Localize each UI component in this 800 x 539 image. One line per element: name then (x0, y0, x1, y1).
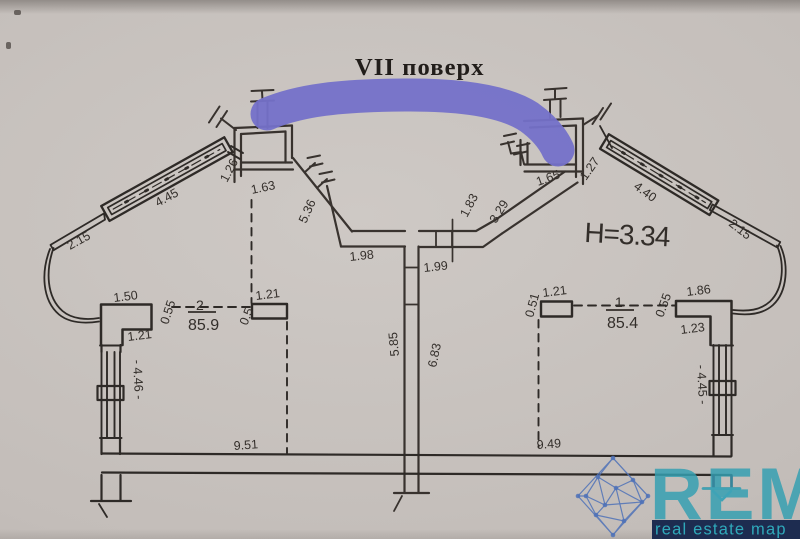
svg-text:VII поверх: VII поверх (355, 54, 485, 81)
svg-text:0.5: 0.5 (237, 306, 257, 327)
svg-text:1.83: 1.83 (457, 191, 481, 219)
svg-text:5.85: 5.85 (386, 331, 402, 357)
svg-text:- 4.45 -: - 4.45 - (694, 364, 710, 404)
svg-text:1.99: 1.99 (423, 259, 449, 275)
svg-text:85.4: 85.4 (607, 315, 638, 332)
svg-text:1.21: 1.21 (542, 283, 568, 300)
svg-text:0.55: 0.55 (158, 298, 179, 326)
svg-text:1.27: 1.27 (577, 155, 602, 183)
svg-text:- 4.46 -: - 4.46 - (130, 359, 146, 399)
svg-text:6.83: 6.83 (425, 342, 444, 369)
svg-text:1.50: 1.50 (113, 288, 139, 305)
svg-text:0.55: 0.55 (653, 291, 674, 319)
svg-text:2: 2 (196, 297, 204, 313)
svg-text:1.21: 1.21 (255, 286, 281, 303)
svg-text:9.51: 9.51 (233, 437, 258, 453)
svg-text:2.15: 2.15 (65, 229, 93, 253)
svg-text:85.9: 85.9 (188, 317, 219, 334)
svg-text:1.21: 1.21 (127, 327, 153, 344)
svg-text:1.23: 1.23 (680, 320, 706, 337)
svg-text:2.15: 2.15 (726, 216, 754, 242)
svg-text:1.63: 1.63 (250, 178, 277, 197)
svg-text:0.51: 0.51 (522, 292, 542, 319)
svg-text:1.98: 1.98 (349, 248, 375, 264)
svg-text:1.86: 1.86 (686, 282, 712, 299)
svg-text:9.49: 9.49 (536, 436, 561, 452)
svg-text:1: 1 (615, 294, 623, 310)
svg-text:H=3.34: H=3.34 (584, 217, 671, 252)
svg-text:5.36: 5.36 (296, 197, 319, 225)
svg-text:real estate map: real estate map (655, 521, 787, 539)
